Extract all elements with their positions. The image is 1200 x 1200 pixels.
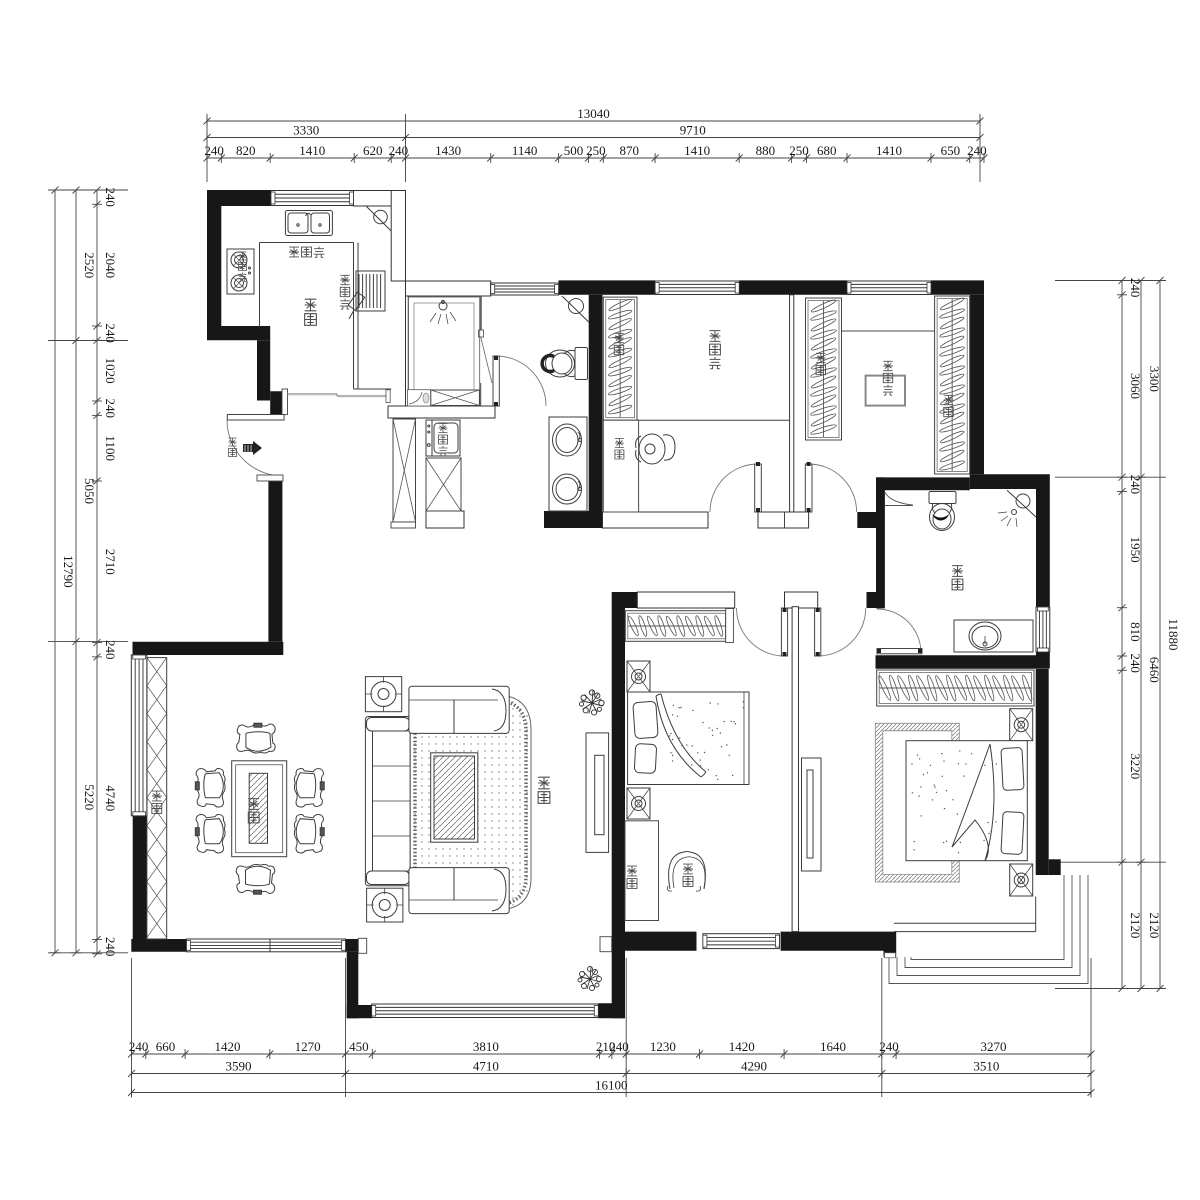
svg-text:1140: 1140 bbox=[512, 143, 538, 158]
svg-text:3810: 3810 bbox=[473, 1039, 499, 1054]
svg-text:1270: 1270 bbox=[295, 1039, 321, 1054]
svg-text:1950: 1950 bbox=[1128, 537, 1143, 563]
svg-text:1410: 1410 bbox=[684, 143, 710, 158]
svg-text:660: 660 bbox=[156, 1039, 176, 1054]
svg-text:2710: 2710 bbox=[103, 549, 118, 575]
svg-text:240: 240 bbox=[103, 640, 118, 660]
svg-text:1230: 1230 bbox=[650, 1039, 676, 1054]
svg-text:240: 240 bbox=[204, 143, 224, 158]
svg-text:11880: 11880 bbox=[1166, 618, 1181, 650]
svg-text:1430: 1430 bbox=[435, 143, 461, 158]
svg-text:1410: 1410 bbox=[876, 143, 902, 158]
svg-text:3220: 3220 bbox=[1128, 753, 1143, 779]
svg-text:240: 240 bbox=[1128, 278, 1143, 298]
svg-text:4740: 4740 bbox=[103, 785, 118, 811]
svg-text:3510: 3510 bbox=[973, 1059, 999, 1074]
svg-text:1420: 1420 bbox=[214, 1039, 240, 1054]
svg-text:650: 650 bbox=[941, 143, 961, 158]
svg-text:2040: 2040 bbox=[103, 252, 118, 278]
svg-text:240: 240 bbox=[967, 143, 987, 158]
svg-text:3060: 3060 bbox=[1128, 373, 1143, 399]
svg-text:3300: 3300 bbox=[1147, 366, 1162, 392]
svg-text:1020: 1020 bbox=[103, 358, 118, 384]
svg-text:9710: 9710 bbox=[680, 123, 706, 138]
svg-text:500: 500 bbox=[564, 143, 584, 158]
svg-text:16100: 16100 bbox=[595, 1078, 628, 1093]
svg-text:250: 250 bbox=[586, 143, 606, 158]
svg-text:5050: 5050 bbox=[82, 478, 97, 504]
svg-text:240: 240 bbox=[103, 323, 118, 343]
svg-text:820: 820 bbox=[236, 143, 256, 158]
svg-text:5220: 5220 bbox=[82, 784, 97, 810]
svg-text:6460: 6460 bbox=[1147, 657, 1162, 683]
svg-text:240: 240 bbox=[129, 1039, 149, 1054]
svg-text:240: 240 bbox=[103, 937, 118, 957]
svg-text:2520: 2520 bbox=[82, 252, 97, 278]
svg-text:1640: 1640 bbox=[820, 1039, 846, 1054]
svg-text:250: 250 bbox=[789, 143, 809, 158]
svg-text:1420: 1420 bbox=[729, 1039, 755, 1054]
svg-text:620: 620 bbox=[363, 143, 383, 158]
svg-text:680: 680 bbox=[817, 143, 837, 158]
svg-text:12790: 12790 bbox=[61, 555, 76, 588]
svg-text:13040: 13040 bbox=[577, 106, 610, 121]
svg-text:240: 240 bbox=[609, 1039, 629, 1054]
svg-text:240: 240 bbox=[103, 187, 118, 207]
svg-text:4290: 4290 bbox=[741, 1059, 767, 1074]
svg-text:450: 450 bbox=[349, 1039, 369, 1054]
svg-text:810: 810 bbox=[1128, 622, 1143, 642]
svg-text:2120: 2120 bbox=[1147, 912, 1162, 938]
svg-text:240: 240 bbox=[103, 398, 118, 418]
svg-text:2120: 2120 bbox=[1128, 912, 1143, 938]
svg-text:240: 240 bbox=[1128, 653, 1143, 673]
svg-text:240: 240 bbox=[389, 143, 409, 158]
svg-text:3590: 3590 bbox=[226, 1059, 252, 1074]
svg-text:1100: 1100 bbox=[103, 435, 118, 461]
svg-text:1410: 1410 bbox=[299, 143, 325, 158]
svg-text:240: 240 bbox=[879, 1039, 899, 1054]
svg-text:4710: 4710 bbox=[473, 1059, 499, 1074]
svg-text:240: 240 bbox=[1128, 475, 1143, 495]
svg-text:870: 870 bbox=[619, 143, 639, 158]
svg-text:880: 880 bbox=[756, 143, 776, 158]
svg-text:3270: 3270 bbox=[981, 1039, 1007, 1054]
svg-text:3330: 3330 bbox=[293, 123, 319, 138]
